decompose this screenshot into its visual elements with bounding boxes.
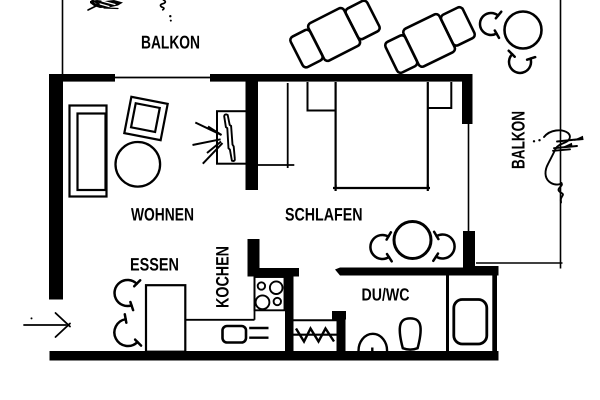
svg-text:SCHLAFEN: SCHLAFEN <box>285 205 363 225</box>
svg-text:ESSEN: ESSEN <box>130 255 179 275</box>
svg-text:DU/WC: DU/WC <box>362 285 410 305</box>
svg-text:KOCHEN: KOCHEN <box>213 246 233 308</box>
svg-text:BALKON: BALKON <box>141 32 200 53</box>
svg-text:BALKON: BALKON <box>508 111 529 169</box>
svg-text:WOHNEN: WOHNEN <box>131 205 194 225</box>
